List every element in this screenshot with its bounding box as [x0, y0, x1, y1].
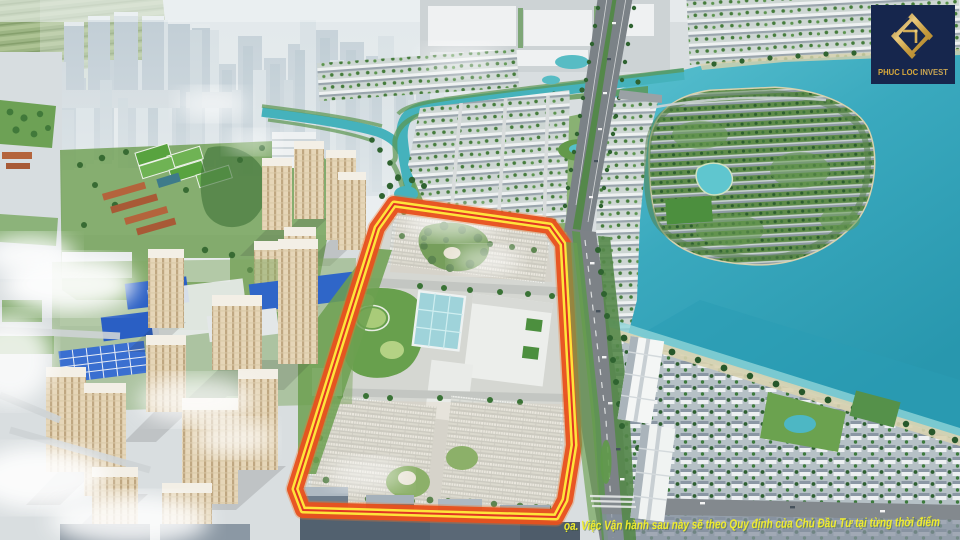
- svg-text:PHUC LOC INVEST: PHUC LOC INVEST: [878, 67, 949, 77]
